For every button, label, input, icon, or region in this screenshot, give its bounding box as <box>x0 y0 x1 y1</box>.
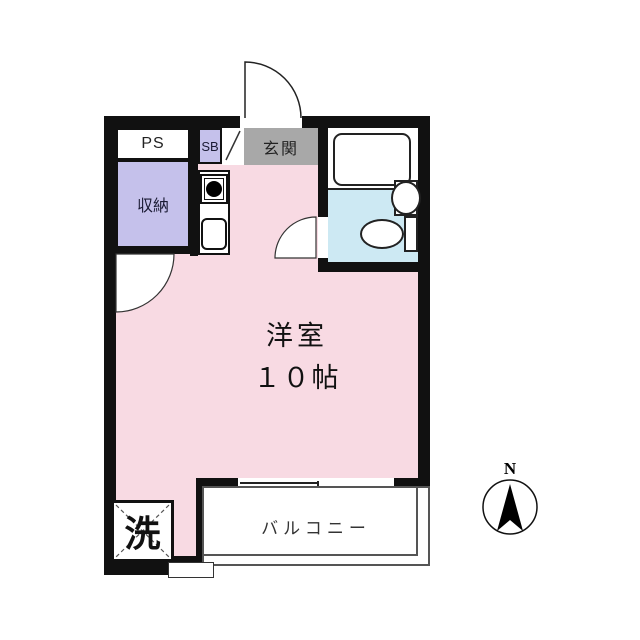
ps-box: PS <box>116 128 190 160</box>
compass-n-text: N <box>504 459 516 479</box>
bathtub <box>333 133 411 186</box>
toilet-tank <box>404 216 418 252</box>
balcony-step <box>168 562 214 578</box>
outer-wall-right <box>418 116 430 492</box>
ps-label: PS <box>141 135 164 153</box>
stove-burner <box>206 181 222 197</box>
compass-needle <box>497 484 523 531</box>
laundry-box: 洗 <box>111 500 174 562</box>
compass-circle <box>483 480 537 534</box>
kitchen-sink <box>201 218 227 250</box>
storage-label: 収納 <box>137 192 169 216</box>
main-room-size: １０帖 <box>217 358 377 400</box>
main-room-label: 洋室 １０帖 <box>217 316 377 400</box>
entrance-door-arc <box>245 62 301 118</box>
entry-area: 玄関 <box>244 128 318 165</box>
laundry-label: 洗 <box>124 505 160 557</box>
balcony: バルコニー <box>202 486 430 566</box>
entry-label: 玄関 <box>263 135 299 159</box>
sink-bowl <box>391 181 421 215</box>
closet-bottom-wall <box>116 248 190 254</box>
entry-door-panel <box>222 128 244 165</box>
outer-wall-top-right <box>302 116 430 128</box>
bathroom-left-wall-upper <box>318 128 328 217</box>
main-room-name: 洋室 <box>217 316 377 358</box>
outer-wall-top-left <box>104 116 240 128</box>
balcony-inner-line <box>204 488 418 556</box>
divider-wall-closet-kitchen <box>190 128 198 256</box>
compass-north-label: N <box>496 460 524 478</box>
sb-box: SB <box>198 128 222 164</box>
bathroom-bottom-wall <box>318 262 430 272</box>
toilet-bowl <box>360 219 404 249</box>
floor-plan: PS 収納 SB 玄関 洗 バルコニー 洋室 １０帖 <box>0 0 640 640</box>
storage-box: 収納 <box>116 160 190 248</box>
sb-label: SB <box>201 139 218 154</box>
bathroom-door-opening <box>318 217 328 258</box>
